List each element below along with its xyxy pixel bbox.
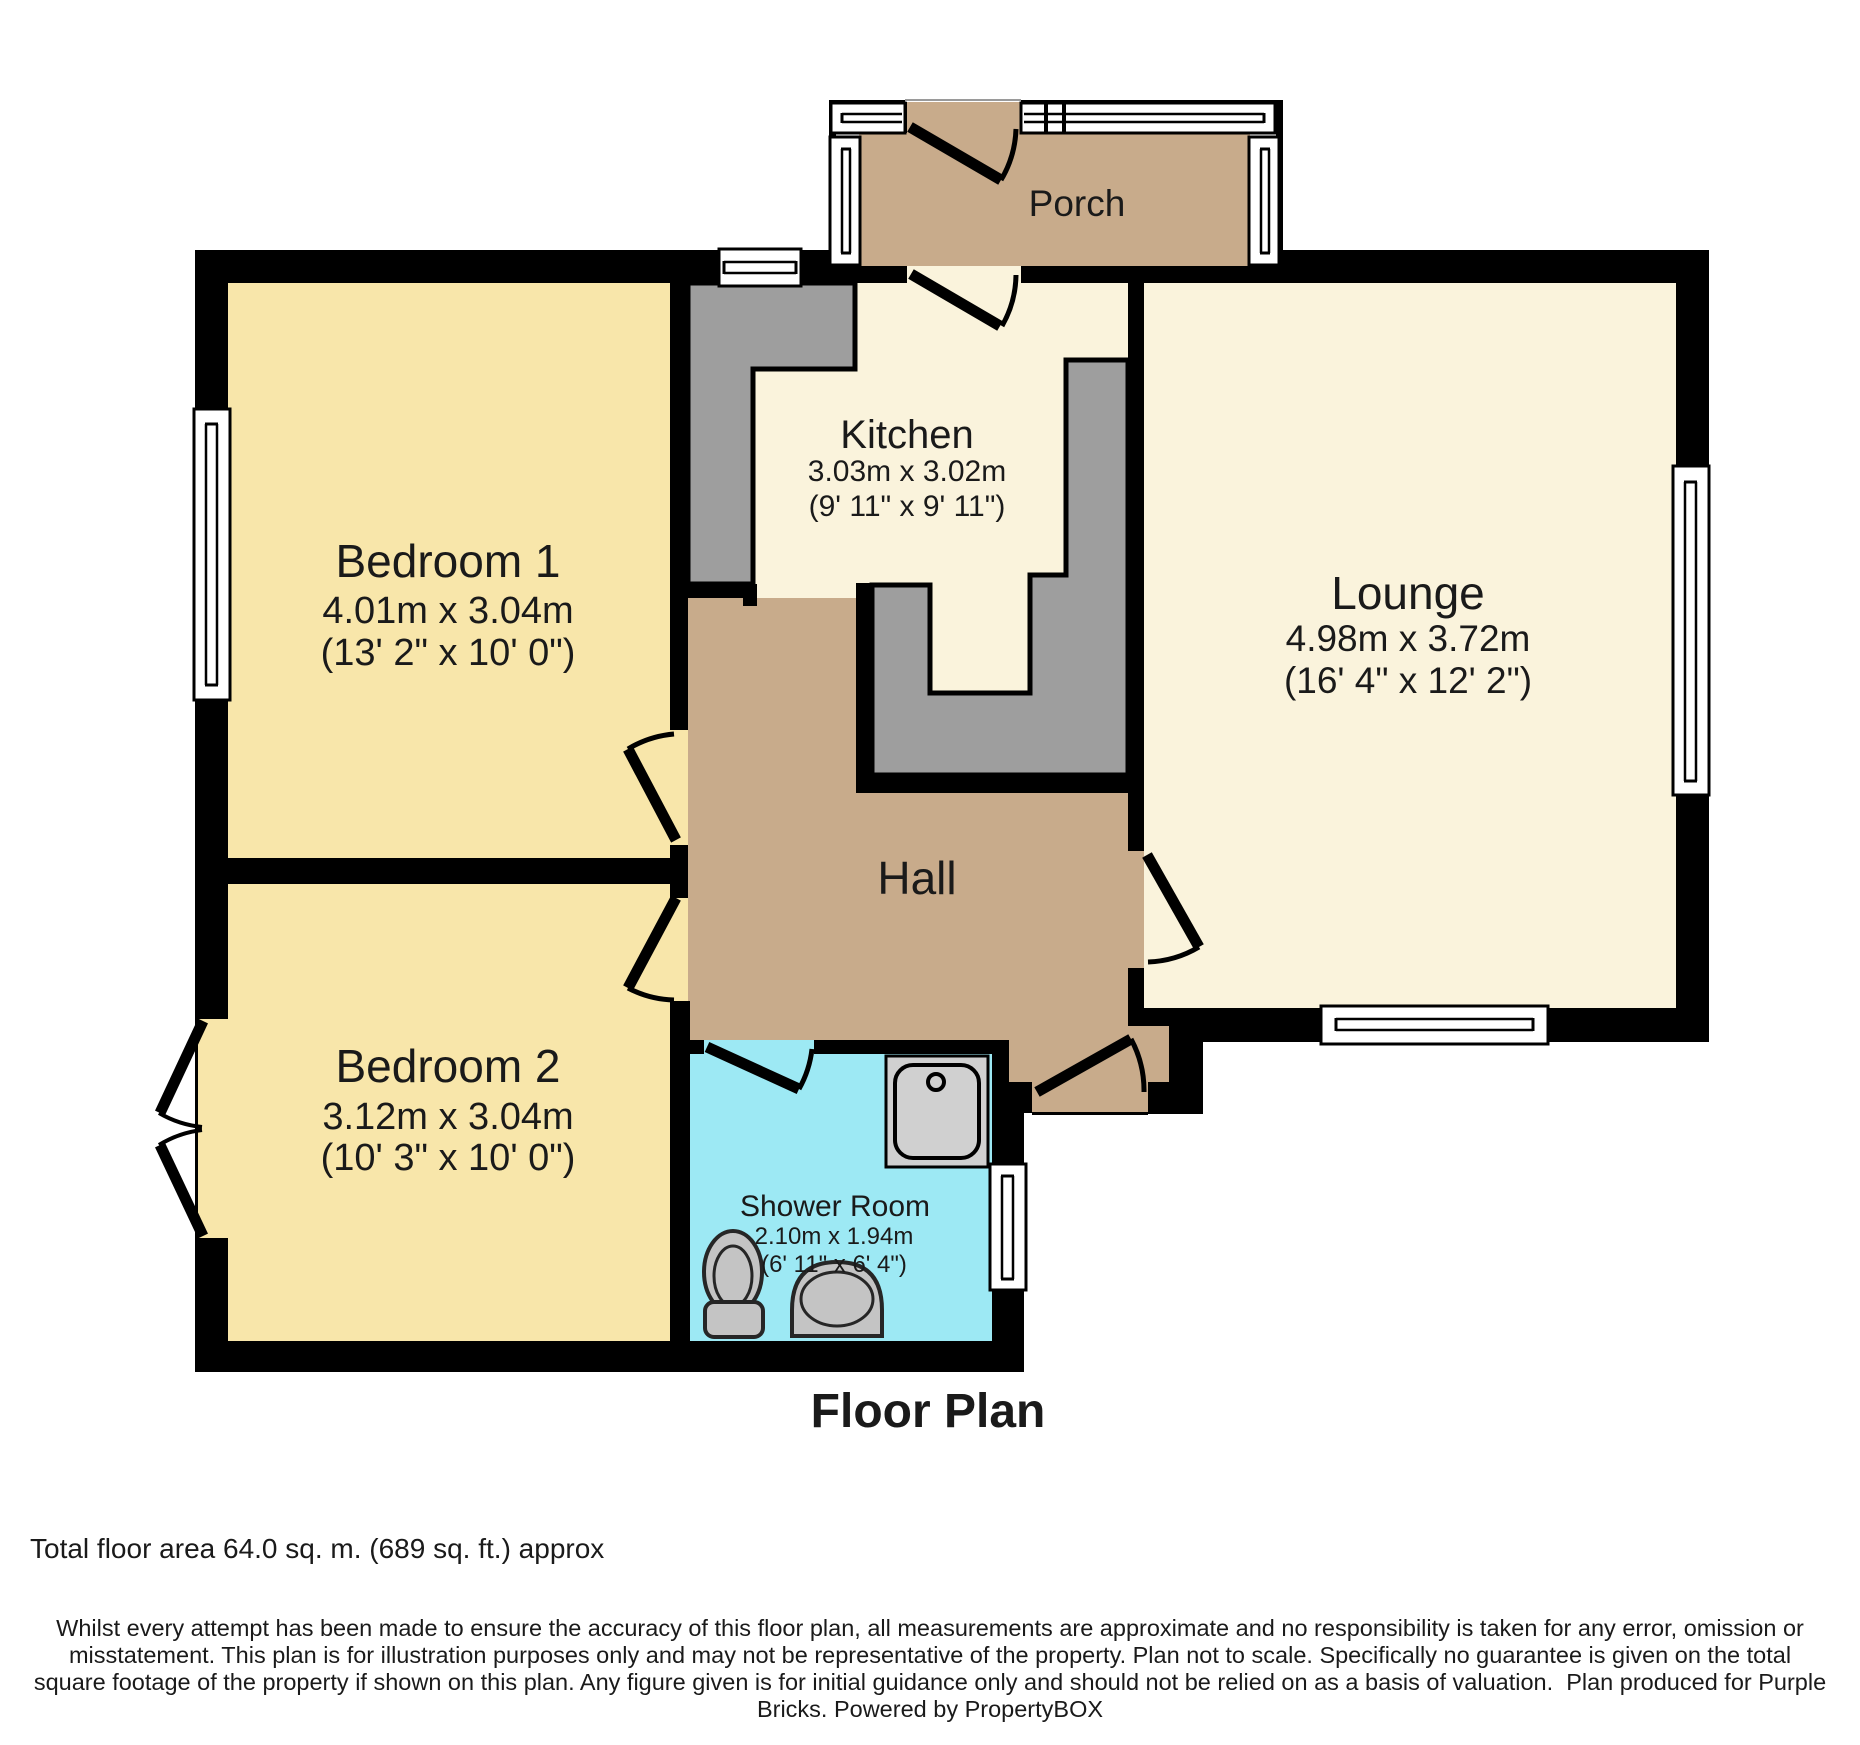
svg-text:Hall: Hall (877, 852, 956, 904)
svg-text:(13' 2" x 10' 0"): (13' 2" x 10' 0") (321, 632, 576, 674)
svg-text:(16' 4" x 12' 2"): (16' 4" x 12' 2") (1284, 660, 1532, 701)
svg-text:Shower Room: Shower Room (740, 1190, 930, 1223)
svg-text:(9' 11" x 9' 11"): (9' 11" x 9' 11") (809, 490, 1006, 523)
svg-text:3.12m x 3.04m: 3.12m x 3.04m (322, 1096, 573, 1138)
svg-text:4.01m x 3.04m: 4.01m x 3.04m (322, 590, 573, 632)
svg-text:Lounge: Lounge (1331, 567, 1485, 619)
svg-text:Bedroom 2: Bedroom 2 (335, 1040, 560, 1092)
svg-text:3.03m x 3.02m: 3.03m x 3.02m (808, 455, 1006, 488)
svg-text:(6' 11" x 6' 4"): (6' 11" x 6' 4") (761, 1251, 907, 1278)
svg-text:Bedroom 1: Bedroom 1 (335, 535, 560, 587)
svg-text:Kitchen: Kitchen (840, 413, 973, 457)
svg-text:Bricks. Powered by PropertyBOX: Bricks. Powered by PropertyBOX (757, 1696, 1103, 1722)
svg-text:2.10m x 1.94m: 2.10m x 1.94m (755, 1223, 914, 1250)
svg-text:Whilst every attempt has been: Whilst every attempt has been made to en… (56, 1615, 1804, 1641)
svg-text:4.98m x 3.72m: 4.98m x 3.72m (1286, 618, 1531, 659)
svg-text:(10' 3" x 10' 0"): (10' 3" x 10' 0") (321, 1137, 576, 1179)
svg-text:misstatement. This plan is for: misstatement. This plan is for illustrat… (69, 1642, 1791, 1668)
svg-text:square footage of the property: square footage of the property if shown … (34, 1669, 1826, 1695)
svg-text:Floor Plan: Floor Plan (811, 1385, 1046, 1438)
svg-text:Porch: Porch (1029, 183, 1126, 224)
svg-text:Total floor area 64.0 sq. m. (: Total floor area 64.0 sq. m. (689 sq. ft… (30, 1533, 604, 1564)
